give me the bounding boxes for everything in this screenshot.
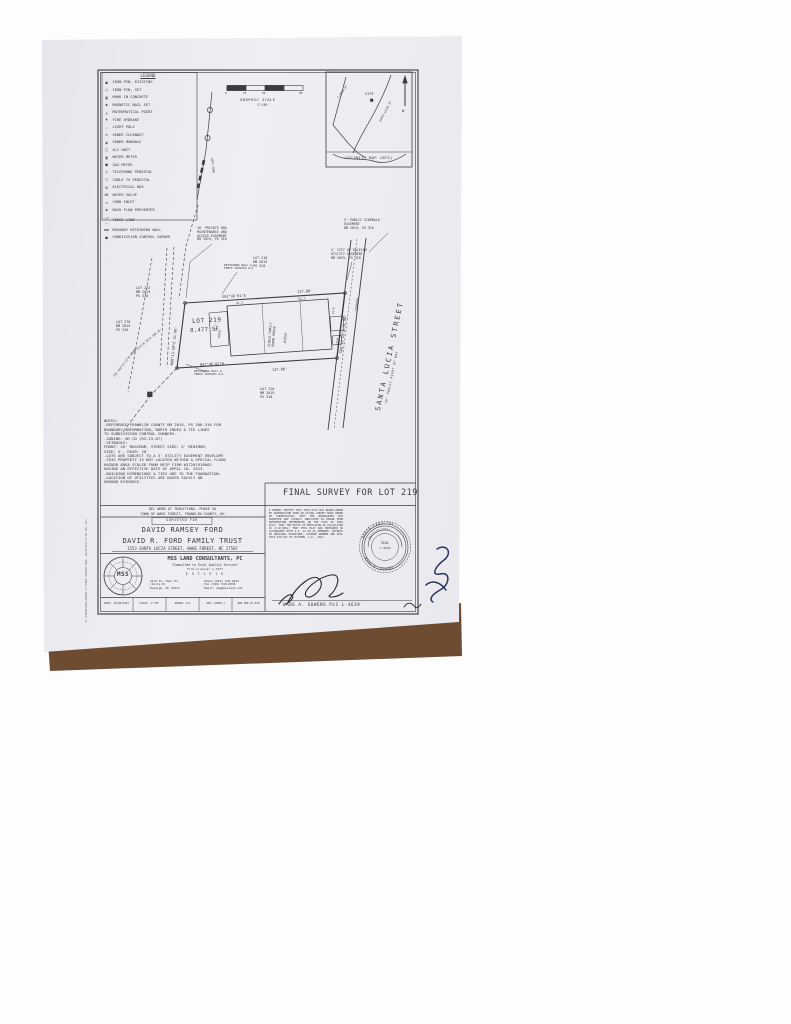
wall-note-top: RETAINING WALL & FENCE CROSSES P/L [224, 264, 254, 271]
legend-item: ●IRON PIN, EXISTING [103, 80, 193, 85]
client-name-1: DAVID RAMSEY FORD [101, 526, 264, 534]
iron-pin-existing-icon: ● [103, 80, 110, 85]
legend-item: ○IRON PIN, SET [103, 87, 193, 92]
scale-tick-60: 60 [299, 92, 302, 95]
ac-unit-icon: □ [103, 147, 110, 152]
easement-hoa-note: 10' PRIVATE HOA MAINTENANCE AND ACCESS E… [197, 227, 227, 242]
legend-item: ◉SEWER MANHOLE [103, 140, 193, 145]
legend-item: ◇YARD INLET [103, 200, 193, 205]
retaining-wall-icon: ▬▬ [103, 227, 110, 232]
scale-ratio: 1"=30' [257, 104, 269, 108]
surveyor-name-line: WADE A. GOWENS PLS L-4639 [283, 603, 360, 608]
dim-b: 56.2' [298, 297, 307, 301]
bearing-top: S81°46'01"E [222, 293, 246, 298]
dirt-road-label: DIRT ROAD [210, 158, 215, 173]
dim-a: 41.7' [236, 301, 245, 305]
legend-item: □A/C UNIT [103, 147, 193, 152]
sewer-line [197, 92, 213, 200]
yard-inlet-icon: ◇ [103, 200, 110, 205]
electrical-box-icon: ⊠ [103, 185, 110, 190]
svg-text:WADE A. GOWENS: WADE A. GOWENS [364, 556, 394, 571]
legend-item: ⊙SEWER CLEANOUT [103, 132, 193, 137]
scale-tick-30: 30 [262, 92, 265, 95]
fence-line-icon: —×— [103, 215, 110, 225]
legend-item: ■SUBDIVISION CONTROL CORNER [103, 235, 193, 240]
bearing-bottom: N81°46'01"W [200, 361, 224, 366]
vicinity-map-box [326, 72, 412, 167]
sewer-manhole-icon: ◉ [103, 140, 110, 145]
mark-in-concrete-icon: ▣ [103, 95, 110, 100]
legend-item: ⊤TELEPHONE PEDESTAL [103, 170, 193, 175]
iron-pin-set-icon: ○ [103, 87, 110, 92]
scale-bar [227, 86, 303, 91]
strip-cell-surv: SURV: 10/06/2021 [100, 602, 133, 605]
dist-bottom: 127.00' [272, 367, 287, 372]
fire-hydrant-icon: ♦ [103, 117, 110, 122]
lot-270-label: LOT 270 BM 2019 PG 310 [116, 321, 130, 333]
legend-list: ●IRON PIN, EXISTING ○IRON PIN, SET ▣MARK… [103, 80, 193, 243]
legend-item: △MATHEMATICAL POINT [103, 110, 193, 115]
street-lines [328, 238, 366, 430]
firm-contact: Phone (919) 510-4444 Fax (919) 510-8038 … [204, 580, 242, 590]
mss-logo-text: MSS [112, 572, 134, 579]
north-label: N [402, 109, 404, 113]
stoop-label: STOOP [337, 338, 340, 345]
control-corner-icon: ■ [103, 235, 110, 240]
seal-center-number: L-4639 [370, 547, 400, 550]
easement-utility-note: 5' CITY OF RALEIGH UTILITY EASEMENT BM 2… [331, 249, 367, 260]
scale-title: GRAPHIC SCALE [240, 98, 276, 103]
seal-arc-bottom: WADE A. GOWENS [364, 556, 394, 571]
lot-273-label: LOT 273 BM 2019 PG 310 [136, 287, 150, 299]
strip-cell-per: PER PRE-16-078 [232, 602, 265, 605]
legend-item: ☆LIGHT POLE [103, 125, 193, 130]
legend-item: ◆MAGNETIC NAIL SET [103, 102, 193, 107]
dist-top: 127.00' [297, 289, 312, 294]
client-name-2: DAVID R. FORD FAMILY TRUST [101, 537, 264, 545]
final-survey-title: FINAL SURVEY FOR LOT 219 [283, 489, 418, 499]
lot-220-label: LOT 220 BM 2019 PG 310 [260, 388, 274, 400]
firm-est: E S T 1 9 1 9 [148, 573, 262, 577]
legend-item: ▽CABLE TV PEDESTAL [103, 177, 193, 182]
strip-cell-drawn: DRAWN: CLG [166, 602, 199, 605]
light-pole-icon: ☆ [103, 125, 110, 130]
dim-c: 12.1' [214, 323, 218, 331]
legend-item: ▣MARK IN CONCRETE [103, 95, 193, 100]
porch-label: PORCH [218, 330, 222, 338]
firm-addr: 4113 St. Omer Pl. (Suite B) Raleigh, NC … [150, 580, 180, 590]
legend-item: ◆BACK FLOW PREVENTER [103, 207, 193, 212]
client-address: 1553 SANTA LUCIA STREET, WAKE FOREST, NC… [101, 547, 264, 552]
vicinity-caption: VICINITY MAP (NTS) [327, 156, 411, 161]
photo-background: NORTH CAROLINA PROFESSIONAL WADE A. GOWE… [0, 0, 791, 1024]
jurisdiction: TOWN OF WAKE FOREST, FRANKLIN COUNTY, NC [101, 512, 264, 516]
side-file-text: P:\10906\DWG\10906-1 FINAL SURVEY.DWG, 1… [85, 519, 88, 622]
magnetic-nail-icon: ◆ [103, 102, 110, 107]
legend-item: ▬▬MASONRY RETAINING WALL [103, 227, 193, 232]
wall-note-bottom: RETAINING WALL & FENCE CROSSES P/L [194, 370, 224, 377]
project-name: DEL WEBB AT TRADITIONS, PHASE 5A [101, 507, 264, 511]
gas-meter-icon: ■ [103, 162, 110, 167]
scale-tick-15: 15 [243, 92, 246, 95]
legend-item: ⊠ELECTRICAL BOX [103, 185, 193, 190]
scale-tick-0: 0 [225, 92, 227, 95]
legend-item: —×—FENCE LINE [103, 215, 193, 225]
cable-tv-pedestal-icon: ▽ [103, 177, 110, 182]
firm-name: MSS LAND CONSULTANTS, PC [148, 556, 262, 562]
math-point-icon: △ [103, 110, 110, 115]
strip-cell-scale: SCALE: 1"=30' [133, 602, 166, 605]
legend-item: ▣WATER METER [103, 155, 193, 160]
house-number-label: #1553 [284, 333, 289, 343]
surveyed-for-label: SURVEYED FOR [152, 519, 212, 523]
vicinity-site-label: SITE [365, 92, 374, 96]
north-arrow [403, 76, 407, 106]
control-corner-marker [148, 392, 153, 397]
water-valve-icon: ⋈ [103, 192, 110, 197]
lot-218-label: LOT 218 BM 2019 PG 310 [253, 257, 267, 269]
legend-item: ♦FIRE HYDRANT [103, 117, 193, 122]
telephone-pedestal-icon: ⊤ [103, 170, 110, 175]
certification-text: I HEREBY CERTIFY THAT THIS PLAT WAS DRAW… [269, 509, 343, 539]
pen-scribble [426, 547, 448, 602]
strip-cell-job: JOB: 10906.1 [199, 602, 232, 605]
backflow-preventer-icon: ◆ [103, 207, 110, 212]
sewer-cleanout-icon: ⊙ [103, 132, 110, 137]
firm-license: Firm License: C-3277 [148, 568, 262, 571]
easement-sidewalk-note: 5' PUBLIC SIDEWALK EASEMENT BM 2019, PG … [344, 219, 380, 230]
legend-title: LEGEND [103, 74, 193, 79]
notes-block: NOTES: -REFERENCE FRANKLIN COUNTY BM 201… [104, 419, 254, 485]
legend-item: ⋈WATER VALVE [103, 192, 193, 197]
legend-item: ■GAS METER [103, 162, 193, 167]
water-meter-icon: ▣ [103, 155, 110, 160]
